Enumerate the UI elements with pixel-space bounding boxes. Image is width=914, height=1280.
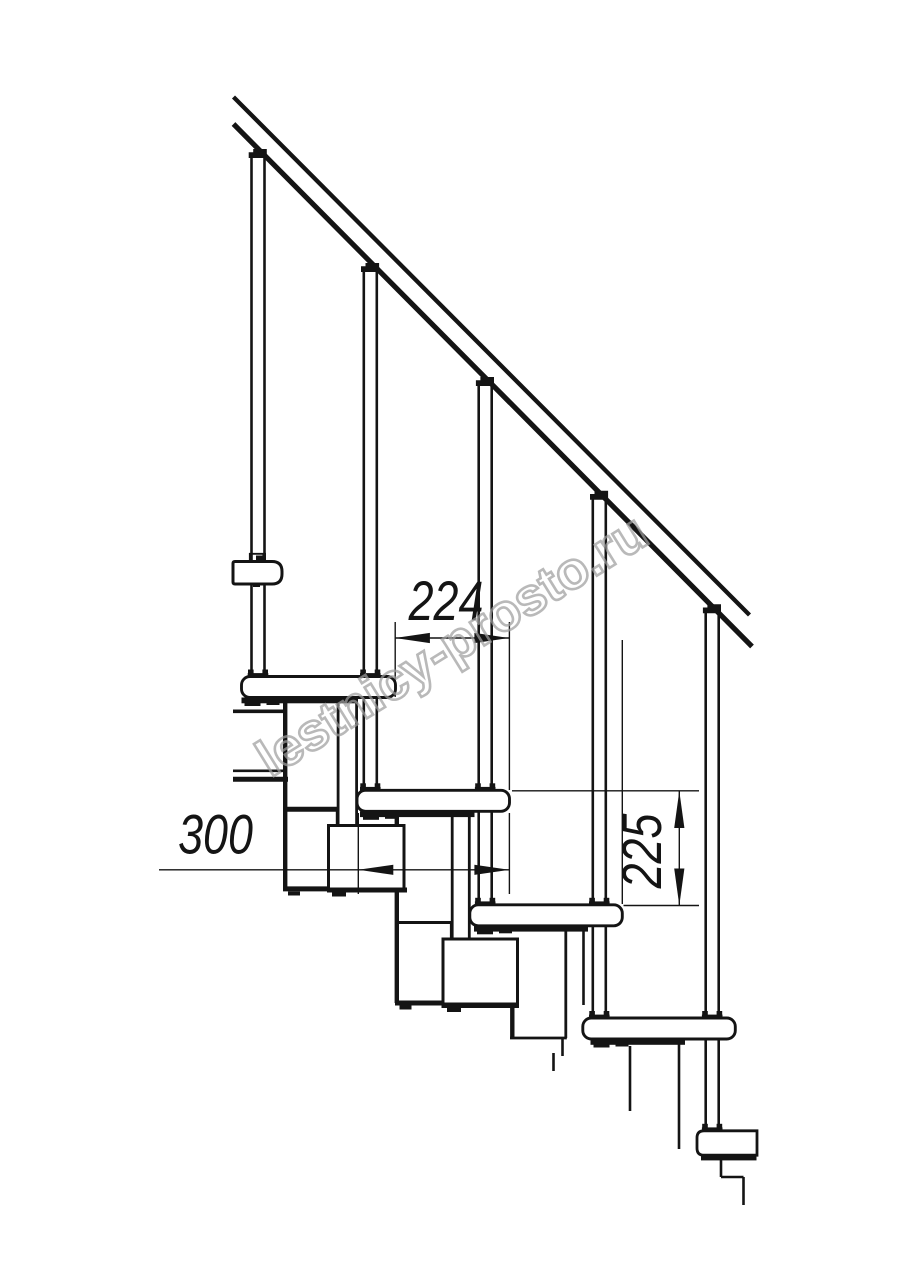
svg-text:300: 300: [178, 803, 253, 866]
svg-text:225: 225: [610, 813, 673, 889]
